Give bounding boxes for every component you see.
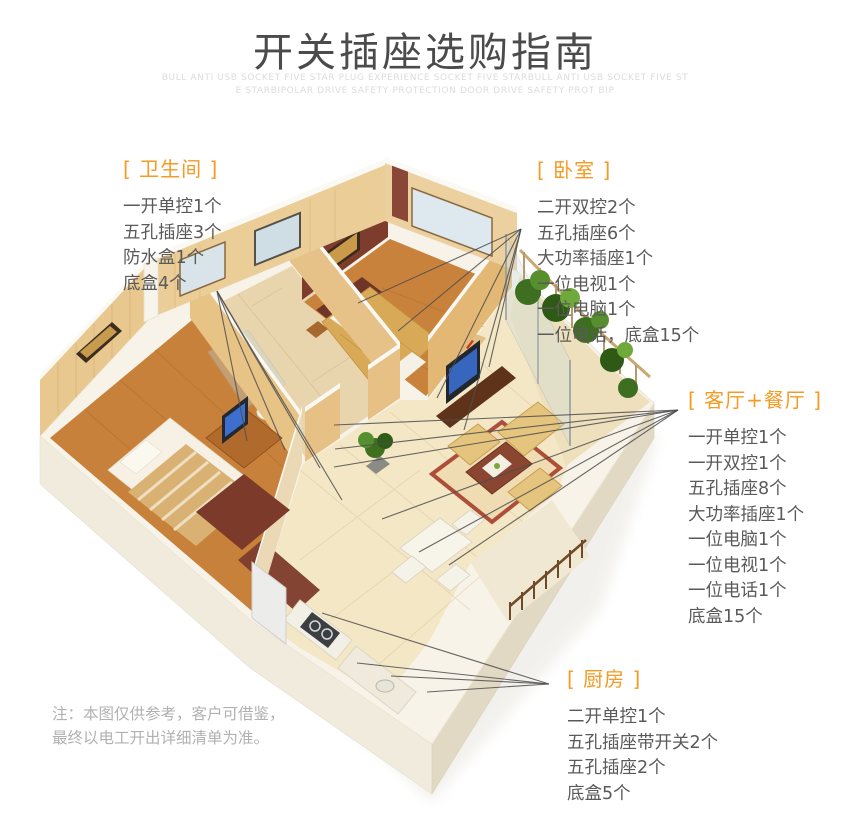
list-item: 一位电话1个	[688, 579, 822, 605]
list-item: 一开单控1个	[123, 195, 222, 221]
list-item: 五孔插座2个	[567, 756, 718, 782]
list-item: 底盒15个	[688, 605, 822, 631]
list-item: 大功率插座1个	[688, 503, 822, 529]
list-item: 一位电脑1个	[688, 528, 822, 554]
list-item: 大功率插座1个	[537, 247, 699, 273]
page-title: 开关插座选购指南	[0, 20, 850, 78]
list-item: 二开单控1个	[567, 705, 718, 731]
list-item: 防水盒1个	[123, 246, 222, 272]
bedroom-info-block: [ 卧室 ] 二开双控2个 五孔插座6个 大功率插座1个 一位电视1个 一位电脑…	[537, 154, 699, 349]
list-item: 二开双控2个	[537, 196, 699, 222]
bathroom-label: [ 卫生间 ]	[123, 153, 222, 182]
list-item: 一位电视1个	[688, 554, 822, 580]
bedroom-label: [ 卧室 ]	[537, 154, 699, 183]
bedroom-item-list: 二开双控2个 五孔插座6个 大功率插座1个 一位电视1个 一位电脑1个 一位电话…	[537, 196, 699, 349]
kitchen-item-list: 二开单控1个 五孔插座带开关2个 五孔插座2个 底盒5个	[567, 705, 718, 807]
living-dining-label: [ 客厅+餐厅 ]	[688, 384, 822, 413]
list-item: 五孔插座6个	[537, 222, 699, 248]
list-item: 一开双控1个	[688, 452, 822, 478]
disclaimer-line-1: 注：本图仅供参考，客户可借鉴，	[52, 702, 285, 726]
living-dining-item-list: 一开单控1个 一开双控1个 五孔插座8个 大功率插座1个 一位电脑1个 一位电视…	[688, 426, 822, 630]
list-item: 一位电话，底盒15个	[537, 324, 699, 350]
list-item: 五孔插座8个	[688, 477, 822, 503]
list-item: 一位电视1个	[537, 273, 699, 299]
disclaimer-note: 注：本图仅供参考，客户可借鉴， 最终以电工开出详细清单为准。	[52, 702, 285, 750]
list-item: 五孔插座带开关2个	[567, 731, 718, 757]
bathroom-info-block: [ 卫生间 ] 一开单控1个 五孔插座3个 防水盒1个 底盒4个	[123, 153, 222, 297]
watermark-line-1: BULL ANTI USB SOCKET FIVE STAR PLUG EXPE…	[0, 72, 850, 85]
watermark-text: BULL ANTI USB SOCKET FIVE STAR PLUG EXPE…	[0, 72, 850, 98]
disclaimer-line-2: 最终以电工开出详细清单为准。	[52, 726, 285, 750]
list-item: 五孔插座3个	[123, 221, 222, 247]
list-item: 一位电脑1个	[537, 298, 699, 324]
living-dining-info-block: [ 客厅+餐厅 ] 一开单控1个 一开双控1个 五孔插座8个 大功率插座1个 一…	[688, 384, 822, 630]
list-item: 底盒4个	[123, 272, 222, 298]
bathroom-item-list: 一开单控1个 五孔插座3个 防水盒1个 底盒4个	[123, 195, 222, 297]
list-item: 底盒5个	[567, 782, 718, 808]
list-item: 一开单控1个	[688, 426, 822, 452]
watermark-line-2: E STARBIPOLAR DRIVE SAFETY PROTECTION DO…	[0, 85, 850, 98]
kitchen-info-block: [ 厨房 ] 二开单控1个 五孔插座带开关2个 五孔插座2个 底盒5个	[567, 663, 718, 807]
page: 开关插座选购指南 BULL ANTI USB SOCKET FIVE STAR …	[0, 0, 850, 824]
kitchen-label: [ 厨房 ]	[567, 663, 718, 692]
